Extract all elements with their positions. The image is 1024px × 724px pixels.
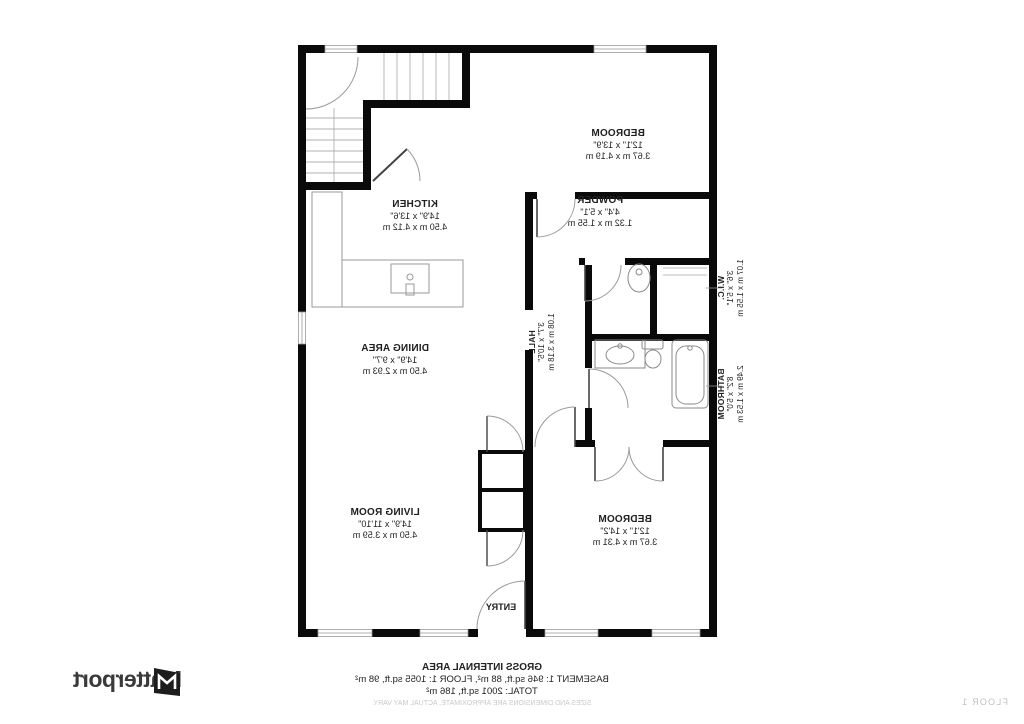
wic-shelves (663, 268, 707, 275)
room-label-bedroom-top: BEDROOM 12'1" x 13'9" 3.67 m x 4.19 m (548, 128, 688, 162)
room-label-bedroom-bottom: BEDROOM 12'1" x 14'2" 3.67 m x 4.31 m (555, 514, 695, 548)
bathtub (672, 340, 708, 408)
room-label-bathroom: BATHROOM 8'2" x 5'0" 2.49 m x 1.53 m (716, 346, 750, 442)
matterport-logo-icon (152, 666, 182, 698)
stair-treads (306, 53, 449, 182)
area-disclaimer: SIZES AND DIMENSIONS ARE APPROXIMATE, AC… (282, 699, 682, 709)
stair-door-leaf (373, 149, 407, 181)
room-label-living: LIVING ROOM 14'9" x 11'10" 4.50 m x 3.59… (315, 507, 455, 541)
floor-plan-page: BEDROOM 12'1" x 13'9" 3.67 m x 4.19 m PO… (0, 0, 1024, 724)
room-label-powder: POWDER 4'4" x 5'1" 1.32 m x 1.55 m (540, 195, 660, 229)
stair-door-arc (407, 149, 420, 181)
stair-landing-door-arc (306, 57, 358, 109)
room-label-hall: HALL 3'7" x 10'5" 1.08 m x 3.18 m (527, 294, 561, 390)
area-line-basement-floor1: BASEMENT 1: 946 sq.ft, 88 m², FLOOR 1: 1… (282, 674, 682, 686)
interior-walls (525, 192, 717, 629)
area-line-total: TOTAL: 2001 sq.ft, 186 m² (282, 686, 682, 698)
floor-plan-drawing (0, 0, 1024, 724)
room-label-entry: ENTRY (471, 602, 531, 612)
entry-door-opening (478, 629, 526, 637)
powder-sink (628, 264, 650, 292)
entry-closets (480, 416, 525, 566)
room-label-dining: DINING AREA 14'9" x 9'7" 4.50 m x 2.93 m (325, 343, 465, 377)
floor-number-label: FLOOR 1 (961, 697, 1008, 707)
room-label-wic: W.I.C. 3'6" x 5'1" 1.07 m x 1.55 m (716, 243, 750, 333)
room-label-kitchen: KITCHEN 14'9" x 13'6" 4.50 m x 4.12 m (345, 199, 485, 233)
matterport-logo: Matterport (73, 666, 182, 693)
bathroom-sink (595, 340, 645, 368)
kitchen-island-sink (391, 264, 429, 293)
gross-internal-area-block: GROSS INTERNAL AREA BASEMENT 1: 946 sq.f… (282, 661, 682, 709)
gross-area-title: GROSS INTERNAL AREA (282, 661, 682, 674)
staircase (306, 45, 470, 190)
